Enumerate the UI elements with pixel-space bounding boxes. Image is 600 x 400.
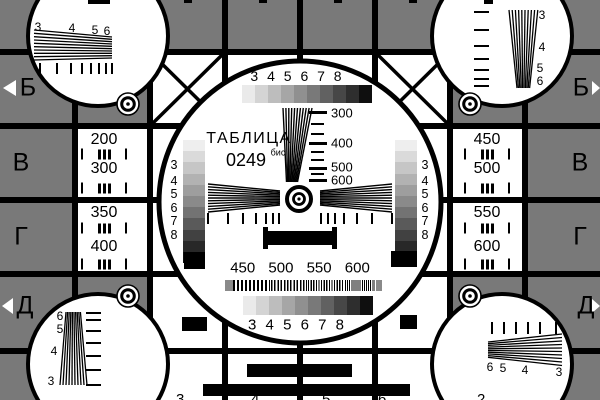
wedge-number: 6 <box>57 310 64 322</box>
convergence-target-icon <box>117 93 139 115</box>
frequency-tick <box>311 173 324 175</box>
convergence-target-icon <box>117 285 139 307</box>
wedge-number: 6 <box>537 75 544 87</box>
bottom-edge-remnant: 6 <box>378 392 394 400</box>
frequency-tick <box>309 142 327 145</box>
strip-number: 4 <box>422 175 429 188</box>
strip-number: 3 <box>422 159 429 172</box>
edge-letter-left-d: Д <box>17 294 34 319</box>
resolution-tick <box>371 213 373 224</box>
wedge-number: 5 <box>57 323 64 335</box>
center-bullseye-icon <box>284 184 314 214</box>
wedge-tick <box>474 11 489 13</box>
burst-frequency-label: 200 <box>91 132 118 148</box>
resolution-tick <box>207 213 209 224</box>
frequency-tick <box>309 111 327 114</box>
wedge-number: 5 <box>537 62 544 74</box>
wedge-tick <box>98 63 100 74</box>
resolution-tick <box>255 213 257 224</box>
wedge-tick <box>515 322 517 334</box>
wedge-tick <box>90 63 92 74</box>
wedge-tick <box>105 63 107 74</box>
wedge-tick <box>474 85 489 87</box>
wedge-tick <box>474 45 489 47</box>
resolution-tick <box>343 213 345 224</box>
wedge-tick <box>111 63 113 74</box>
grayscale-strip-right <box>395 140 417 263</box>
multiburst-segment-600 <box>345 280 375 291</box>
wedge-tick <box>474 58 489 60</box>
burst-pattern <box>81 223 127 234</box>
test-card: Б В Г Д Б В Г Д 3 4 5 6 3 4 5 6 6 5 4 3 … <box>0 0 600 400</box>
convergence-target-icon <box>459 93 481 115</box>
phase-square <box>391 251 417 267</box>
frequency-tick <box>311 151 324 153</box>
wedge-tick <box>86 342 101 344</box>
frequency-row-labels: 450 500 550 600 <box>230 261 370 276</box>
wedge-tick <box>86 384 101 386</box>
strip-number: 5 <box>171 188 178 201</box>
phase-square <box>182 317 207 331</box>
wedge-tick <box>56 63 58 74</box>
top-edge-remnant <box>184 0 192 3</box>
frequency-tick <box>311 123 324 125</box>
wedge-tick <box>70 63 72 74</box>
frequency-tick <box>311 159 324 161</box>
burst-frequency-label: 600 <box>474 239 501 255</box>
burst-pattern <box>81 183 127 194</box>
strip-number: 7 <box>171 215 178 228</box>
convergence-target-icon <box>459 285 481 307</box>
edge-letter-right-v: В <box>572 151 589 176</box>
left-arrow-icon <box>3 80 16 96</box>
top-edge-remnant <box>334 0 342 3</box>
edge-letter-right-g: Г <box>573 225 587 250</box>
right-arrow-icon <box>592 81 600 95</box>
wedge-tick <box>86 369 101 371</box>
resolution-tick <box>278 213 280 224</box>
strip-number: 4 <box>171 175 178 188</box>
top-edge-remnant <box>484 0 493 4</box>
resolution-tick <box>272 213 274 224</box>
wedge-tick <box>86 330 101 332</box>
resolution-tick <box>356 213 358 224</box>
grayscale-bar-bottom <box>243 296 373 315</box>
strip-number: 7 <box>422 215 429 228</box>
top-edge-remnant <box>409 0 417 3</box>
burst-frequency-label: 300 <box>91 161 118 177</box>
burst-pattern <box>464 149 510 160</box>
frequency-mark-label: 400 <box>331 137 353 150</box>
burst-pattern <box>464 183 510 194</box>
frequency-tick <box>309 179 327 182</box>
wedge-number: 4 <box>51 345 58 357</box>
phase-square <box>400 315 417 329</box>
wedge-tick <box>474 29 489 31</box>
resolution-tick <box>334 213 336 224</box>
grayscale-digits-bottom: 3 4 5 6 7 8 <box>248 318 344 333</box>
wedge-number: 3 <box>539 9 546 21</box>
burst-frequency-label: 550 <box>474 205 501 221</box>
burst-frequency-label: 500 <box>474 161 501 177</box>
strip-number: 5 <box>422 188 429 201</box>
wedge-tick <box>86 355 101 357</box>
strip-number: 8 <box>422 229 429 242</box>
wedge-tick <box>474 78 489 80</box>
phase-square <box>184 252 205 269</box>
strip-number: 6 <box>422 202 429 215</box>
wedge-tick <box>39 63 41 74</box>
card-code-suffix: бис <box>271 149 286 158</box>
burst-pattern <box>464 259 510 270</box>
black-reference-bar <box>263 231 337 245</box>
overlay-graphics <box>0 0 600 400</box>
wedge-tick <box>474 69 489 71</box>
grayscale-digits-top: 3 4 5 6 7 8 <box>250 69 341 83</box>
edge-letter-right-d: Д <box>578 294 595 319</box>
multiburst-segment-500 <box>271 280 307 291</box>
wedge-number: 3 <box>35 21 42 33</box>
edge-letter-left-v: В <box>13 151 30 176</box>
edge-letter-left-b: Б <box>20 76 36 101</box>
multiburst-segment-450 <box>233 280 270 291</box>
wedge-number: 4 <box>539 41 546 53</box>
top-edge-remnant <box>88 0 110 4</box>
frequency-mark-label: 600 <box>331 174 353 187</box>
resolution-tick <box>227 213 229 224</box>
card-title: ТАБЛИЦА <box>206 131 291 147</box>
wedge-number: 4 <box>522 364 529 376</box>
wedge-number: 3 <box>48 375 55 387</box>
multiburst-cap <box>225 280 233 291</box>
bottom-edge-remnant: 3 <box>176 392 192 400</box>
multiburst-segment-550 <box>308 280 344 291</box>
card-code: 0249 <box>226 151 266 169</box>
burst-frequency-label: 400 <box>91 239 118 255</box>
frequency-tick <box>309 167 327 170</box>
wedge-number: 5 <box>500 362 507 374</box>
burst-pattern <box>81 259 127 270</box>
bottom-edge-remnant: 2 <box>477 392 493 400</box>
bottom-edge-remnant: 5 <box>322 392 338 400</box>
corner-circle-top-right <box>432 0 572 106</box>
burst-frequency-label: 450 <box>474 132 501 148</box>
multiburst-cap <box>376 280 382 291</box>
wedge-number: 3 <box>556 366 563 378</box>
wedge-tick <box>86 319 101 321</box>
left-arrow-icon <box>2 298 13 314</box>
edge-letter-right-b: Б <box>573 76 589 101</box>
wedge-tick <box>555 322 557 334</box>
wedge-tick <box>491 322 493 334</box>
grayscale-strip-left <box>183 140 205 263</box>
resolution-tick <box>327 213 329 224</box>
wedge-tick <box>527 322 529 334</box>
grayscale-bar-top <box>242 85 372 103</box>
strip-number: 6 <box>171 202 178 215</box>
wedge-number: 4 <box>69 22 76 34</box>
burst-frequency-label: 350 <box>91 205 118 221</box>
edge-letter-left-g: Г <box>14 225 28 250</box>
burst-pattern <box>464 223 510 234</box>
wedge-tick <box>503 322 505 334</box>
wedge-number: 6 <box>487 361 494 373</box>
wedge-tick <box>86 312 101 314</box>
strip-number: 8 <box>171 229 178 242</box>
wedge-tick <box>539 322 541 334</box>
resolution-tick <box>391 213 393 224</box>
resolution-tick <box>242 213 244 224</box>
bottom-black-bar-short <box>247 364 352 377</box>
burst-pattern <box>81 149 127 160</box>
wedge-number: 5 <box>92 24 99 36</box>
wedge-number: 6 <box>104 25 111 37</box>
bottom-edge-remnant: 4 <box>251 392 267 400</box>
strip-number: 3 <box>171 159 178 172</box>
frequency-tick <box>311 133 324 135</box>
frequency-mark-label: 300 <box>331 107 353 120</box>
resolution-tick <box>265 213 267 224</box>
top-edge-remnant <box>259 0 267 3</box>
resolution-tick <box>320 213 322 224</box>
wedge-tick <box>81 63 83 74</box>
